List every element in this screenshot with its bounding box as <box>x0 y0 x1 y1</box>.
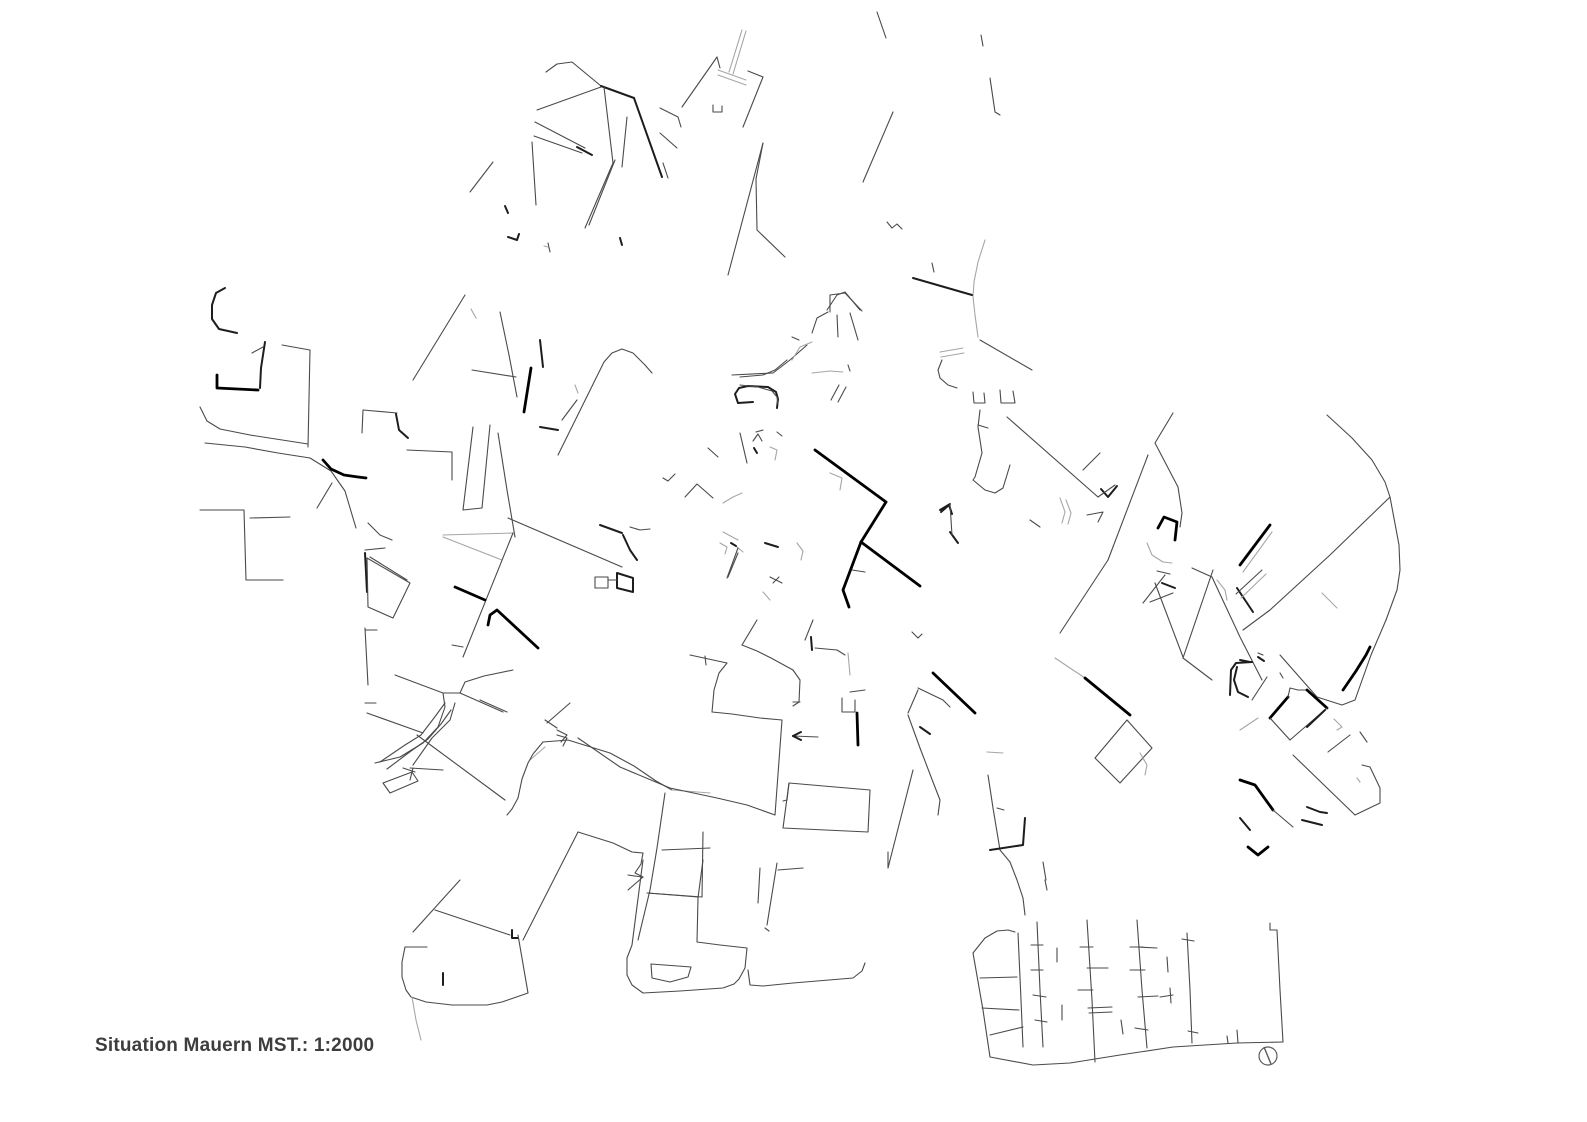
wall-segment <box>690 655 727 663</box>
wall-segment <box>863 112 893 182</box>
site-plan-drawing <box>0 0 1587 1122</box>
wall-segment <box>548 243 550 252</box>
wall-segment <box>523 832 578 940</box>
wall-segment <box>1243 532 1272 572</box>
wall-segment <box>1280 673 1283 678</box>
wall-segment <box>1037 922 1043 1047</box>
wall-segment <box>627 860 747 993</box>
wall-segment <box>1162 583 1175 588</box>
wall-segment <box>718 75 746 85</box>
wall-segment <box>1188 1031 1198 1033</box>
wall-segment <box>773 577 779 583</box>
wall-segment <box>857 713 858 745</box>
wall-segment <box>212 288 237 333</box>
wall-segment <box>200 407 250 435</box>
wall-segment <box>1355 765 1380 815</box>
wall-segment <box>623 535 637 560</box>
wall-segment <box>412 997 421 1040</box>
wall-segment <box>578 738 775 815</box>
wall-segment <box>831 385 839 400</box>
wall-segment <box>1240 525 1270 565</box>
orientation-circle-icon <box>1259 1047 1277 1065</box>
wall-segment <box>973 953 990 1057</box>
wall-segment <box>793 670 800 706</box>
wall-segment <box>1060 498 1065 523</box>
wall-segment <box>460 693 503 712</box>
wall-segment <box>997 808 1004 810</box>
wall-segment <box>748 963 865 986</box>
wall-segment <box>765 543 778 547</box>
wall-segment <box>417 735 505 800</box>
wall-segment <box>1183 570 1213 658</box>
wall-segment <box>460 670 513 693</box>
wall-segment <box>1273 810 1293 827</box>
wall-segment <box>575 385 578 393</box>
wall-segment <box>380 703 445 762</box>
wall-segment <box>742 645 793 670</box>
wall-segment <box>622 117 627 167</box>
wall-segment <box>1328 735 1350 752</box>
wall-segment <box>1183 658 1212 680</box>
wall-segment <box>1018 933 1023 1047</box>
wall-segment <box>1060 560 1108 633</box>
wall-segment <box>600 525 622 533</box>
wall-segment <box>1121 1020 1123 1034</box>
wall-segment <box>260 342 265 388</box>
wall-segment <box>1066 500 1071 524</box>
wall-segment <box>663 474 675 481</box>
wall-segment <box>463 508 482 510</box>
wall-segment <box>793 732 801 736</box>
wall-segment <box>578 832 643 853</box>
wall-segment <box>980 340 1032 370</box>
wall-segment <box>775 720 782 815</box>
wall-segment <box>887 222 902 229</box>
wall-segment <box>708 448 718 457</box>
wall-segment <box>1085 678 1130 715</box>
wall-segment <box>1280 655 1355 705</box>
wall-segment <box>718 70 746 80</box>
wall-segment <box>838 387 846 402</box>
wall-segment <box>1240 818 1250 830</box>
wall-segment <box>713 105 722 112</box>
wall-segment <box>973 930 1015 953</box>
wall-segment <box>973 410 1010 493</box>
wall-segment <box>413 880 460 932</box>
wall-segment <box>660 133 677 148</box>
wall-segment <box>735 386 778 408</box>
wall-segment <box>365 548 385 550</box>
wall-segment <box>395 675 443 693</box>
wall-segment <box>1277 930 1283 1042</box>
wall-segment <box>1043 862 1046 880</box>
wall-segment <box>463 427 473 510</box>
wall-segment <box>740 433 747 463</box>
wall-segment <box>620 238 622 245</box>
wall-segment <box>1087 920 1095 1062</box>
wall-segment <box>742 620 757 645</box>
wall-segment <box>1258 657 1264 661</box>
wall-segment <box>534 136 582 153</box>
wall-segment <box>1007 417 1098 497</box>
wall-segment <box>250 517 290 518</box>
wall-segment <box>1327 415 1390 497</box>
wall-segment <box>546 62 601 86</box>
wall-segment <box>1143 575 1165 603</box>
wall-segment <box>1000 390 1015 403</box>
wall-segment <box>861 542 920 586</box>
wall-segment <box>950 532 958 543</box>
wall-segment <box>773 345 807 373</box>
wall-segment <box>792 337 799 340</box>
wall-segment <box>1234 667 1248 697</box>
wall-segment <box>912 632 922 638</box>
wall-segment <box>987 752 1003 753</box>
wall-segment <box>1135 1028 1148 1030</box>
wall-segment <box>540 427 558 430</box>
wall-segment <box>544 246 548 247</box>
wall-segment <box>723 532 738 540</box>
wall-segment <box>455 587 485 600</box>
wall-segment <box>1288 688 1307 697</box>
wall-segment <box>1140 753 1147 775</box>
wall-segment <box>848 365 850 371</box>
wall-segment <box>685 484 713 498</box>
wall-segment <box>815 648 837 650</box>
wall-segment <box>763 592 770 600</box>
wall-segment <box>1088 1007 1112 1008</box>
wall-segment <box>812 371 843 373</box>
wall-segment <box>545 720 557 728</box>
wall-lines <box>200 12 1400 1065</box>
wall-segment <box>720 543 727 554</box>
wall-segment <box>754 448 757 453</box>
wall-segment <box>728 143 763 275</box>
wall-segment <box>383 772 418 793</box>
wall-segment <box>1240 718 1258 730</box>
plan-caption: Situation Mauern MST.: 1:2000 <box>95 1035 374 1057</box>
wall-segment <box>842 698 855 712</box>
wall-segment <box>488 610 538 648</box>
wall-segment <box>933 673 975 713</box>
wall-segment <box>1252 677 1267 700</box>
wall-segment <box>1293 755 1355 815</box>
wall-segment <box>850 313 858 340</box>
wall-segment <box>1243 497 1390 630</box>
wall-segment <box>558 349 652 455</box>
wall-segment <box>990 1027 1023 1035</box>
wall-segment <box>402 947 528 1005</box>
wall-segment <box>756 430 763 432</box>
wall-segment <box>647 893 698 897</box>
wall-segment <box>1167 957 1168 972</box>
wall-segment <box>1158 517 1177 540</box>
wall-segment <box>308 350 310 447</box>
wall-segment <box>731 543 736 546</box>
wall-segment <box>1182 939 1194 941</box>
wall-segment <box>1270 718 1290 740</box>
wall-segment <box>777 432 782 436</box>
wall-segment <box>663 163 668 178</box>
wall-segment <box>861 502 886 542</box>
wall-segment <box>758 868 760 903</box>
wall-segment <box>472 370 516 377</box>
wall-segment <box>634 98 662 177</box>
wall-segment <box>748 71 763 77</box>
wall-segment <box>1147 543 1172 563</box>
wall-segment <box>837 650 845 655</box>
wall-segment <box>1095 720 1152 783</box>
wall-segment <box>982 1008 1019 1010</box>
wall-segment <box>682 57 717 107</box>
wall-segment <box>471 309 476 318</box>
wall-segment <box>767 863 777 925</box>
wall-segment <box>770 447 777 460</box>
wall-segment <box>443 537 502 560</box>
wall-segment <box>435 910 510 935</box>
wall-segment <box>717 57 720 68</box>
wall-segment <box>1237 1030 1238 1043</box>
wall-segment <box>638 890 650 940</box>
wall-segment <box>1355 497 1400 700</box>
wall-segment <box>407 450 452 480</box>
wall-segment <box>1138 996 1158 997</box>
wall-segment <box>200 510 283 580</box>
wall-segment <box>1101 486 1117 497</box>
wall-segment <box>532 142 536 205</box>
wall-segment <box>505 206 508 213</box>
wall-segment <box>783 783 870 832</box>
wall-segment <box>617 573 633 592</box>
wall-segment <box>980 977 1017 978</box>
wall-segment <box>753 434 762 441</box>
wall-segment <box>990 1042 1283 1065</box>
wall-segment <box>981 35 983 46</box>
wall-segment <box>512 930 518 938</box>
wall-segment <box>1192 568 1212 577</box>
wall-segment <box>877 12 886 38</box>
wall-segment <box>601 86 634 98</box>
wall-segment <box>830 473 842 490</box>
wall-segment <box>830 293 862 312</box>
wall-segment <box>852 570 865 572</box>
wall-segment <box>368 523 392 540</box>
wall-segment <box>1360 732 1367 742</box>
wall-segment <box>250 435 308 444</box>
wall-segment <box>941 353 964 357</box>
wall-segment <box>1155 413 1182 527</box>
wall-segment <box>728 553 738 577</box>
wall-segment <box>727 548 738 578</box>
wall-segment <box>1055 658 1085 678</box>
wall-segment <box>913 278 972 295</box>
wall-segment <box>547 703 570 723</box>
wall-segment <box>1230 662 1252 695</box>
wall-segment <box>367 713 423 733</box>
wall-segment <box>540 340 543 367</box>
wall-segment <box>1108 455 1148 560</box>
wall-segment <box>938 360 957 388</box>
wall-segment <box>535 122 585 148</box>
wall-segment <box>1270 697 1288 718</box>
wall-segment <box>604 87 613 163</box>
wall-segment <box>812 312 828 333</box>
wall-segment <box>712 712 782 720</box>
wall-segment <box>1137 947 1157 948</box>
wall-segment <box>932 263 934 272</box>
wall-segment <box>815 450 886 502</box>
wall-segment <box>524 368 531 412</box>
wall-segment <box>443 533 513 535</box>
wall-segment <box>630 527 650 530</box>
wall-segment <box>660 108 681 127</box>
wall-segment <box>740 385 778 404</box>
wall-segment <box>888 770 913 868</box>
wall-segment <box>498 433 515 537</box>
wall-segment <box>413 295 465 380</box>
wall-segment <box>1240 780 1273 810</box>
wall-segment <box>712 663 727 712</box>
wall-segment <box>452 645 463 647</box>
wall-segment <box>797 543 803 560</box>
plan-sheet: Situation Mauern MST.: 1:2000 <box>0 0 1587 1122</box>
wall-segment <box>1083 453 1100 470</box>
wall-segment <box>1030 520 1040 527</box>
wall-segment <box>508 234 519 240</box>
wall-segment <box>850 690 865 692</box>
wall-segment <box>908 690 918 713</box>
wall-segment <box>217 375 258 390</box>
wall-segment <box>1307 807 1327 813</box>
wall-segment <box>843 542 861 607</box>
wall-segment <box>1334 719 1342 730</box>
wall-segment <box>518 935 528 993</box>
wall-segment <box>990 78 1000 115</box>
wall-segment <box>973 240 985 337</box>
wall-segment <box>1302 820 1322 825</box>
wall-segment <box>482 425 490 508</box>
wall-segment <box>410 768 443 770</box>
wall-segment <box>537 87 601 110</box>
wall-segment <box>1270 923 1277 930</box>
wall-segment <box>362 410 397 433</box>
wall-segment <box>1045 880 1047 890</box>
wall-segment <box>811 637 812 650</box>
wall-segment <box>470 162 493 192</box>
wall-segment <box>978 425 988 428</box>
wall-segment <box>589 160 615 225</box>
wall-segment <box>657 793 665 848</box>
wall-segment <box>837 315 838 337</box>
wall-segment <box>562 400 577 420</box>
wall-segment <box>651 964 691 982</box>
wall-segment <box>585 163 613 228</box>
wall-segment <box>1227 1036 1228 1043</box>
wall-segment <box>480 700 507 712</box>
wall-segment <box>367 558 410 618</box>
wall-segment <box>370 557 407 580</box>
wall-segment <box>543 740 672 790</box>
wall-segment <box>918 688 950 707</box>
wall-segment <box>1187 933 1192 1043</box>
wall-segment <box>1087 512 1103 522</box>
wall-segment <box>973 392 985 403</box>
wall-segment <box>650 848 657 890</box>
wall-segment <box>1322 593 1337 608</box>
wall-segment <box>317 483 332 508</box>
wall-segment <box>778 868 803 870</box>
wall-segment <box>705 656 706 665</box>
wall-segment <box>205 443 245 447</box>
wall-segment <box>365 628 368 685</box>
wall-segment <box>792 342 812 360</box>
wall-segment <box>1357 778 1360 782</box>
wall-segment <box>848 653 850 675</box>
wall-segment <box>323 460 366 478</box>
wall-segment <box>1248 847 1268 855</box>
wall-segment <box>940 348 963 352</box>
wall-segment <box>1157 571 1170 574</box>
wall-segment <box>245 447 356 528</box>
wall-segment <box>1258 653 1263 655</box>
wall-segment <box>252 347 263 353</box>
wall-segment <box>1035 1020 1047 1022</box>
wall-segment <box>508 518 622 567</box>
wall-segment <box>396 414 408 438</box>
wall-segment <box>1307 710 1325 727</box>
wall-segment <box>410 768 413 780</box>
wall-segment <box>765 928 769 931</box>
wall-segment <box>756 179 785 257</box>
wall-segment <box>723 493 742 503</box>
wall-segment <box>1033 995 1046 997</box>
wall-segment <box>500 312 517 397</box>
wall-segment <box>595 577 608 588</box>
wall-segment <box>282 345 310 350</box>
wall-segment <box>920 727 930 734</box>
